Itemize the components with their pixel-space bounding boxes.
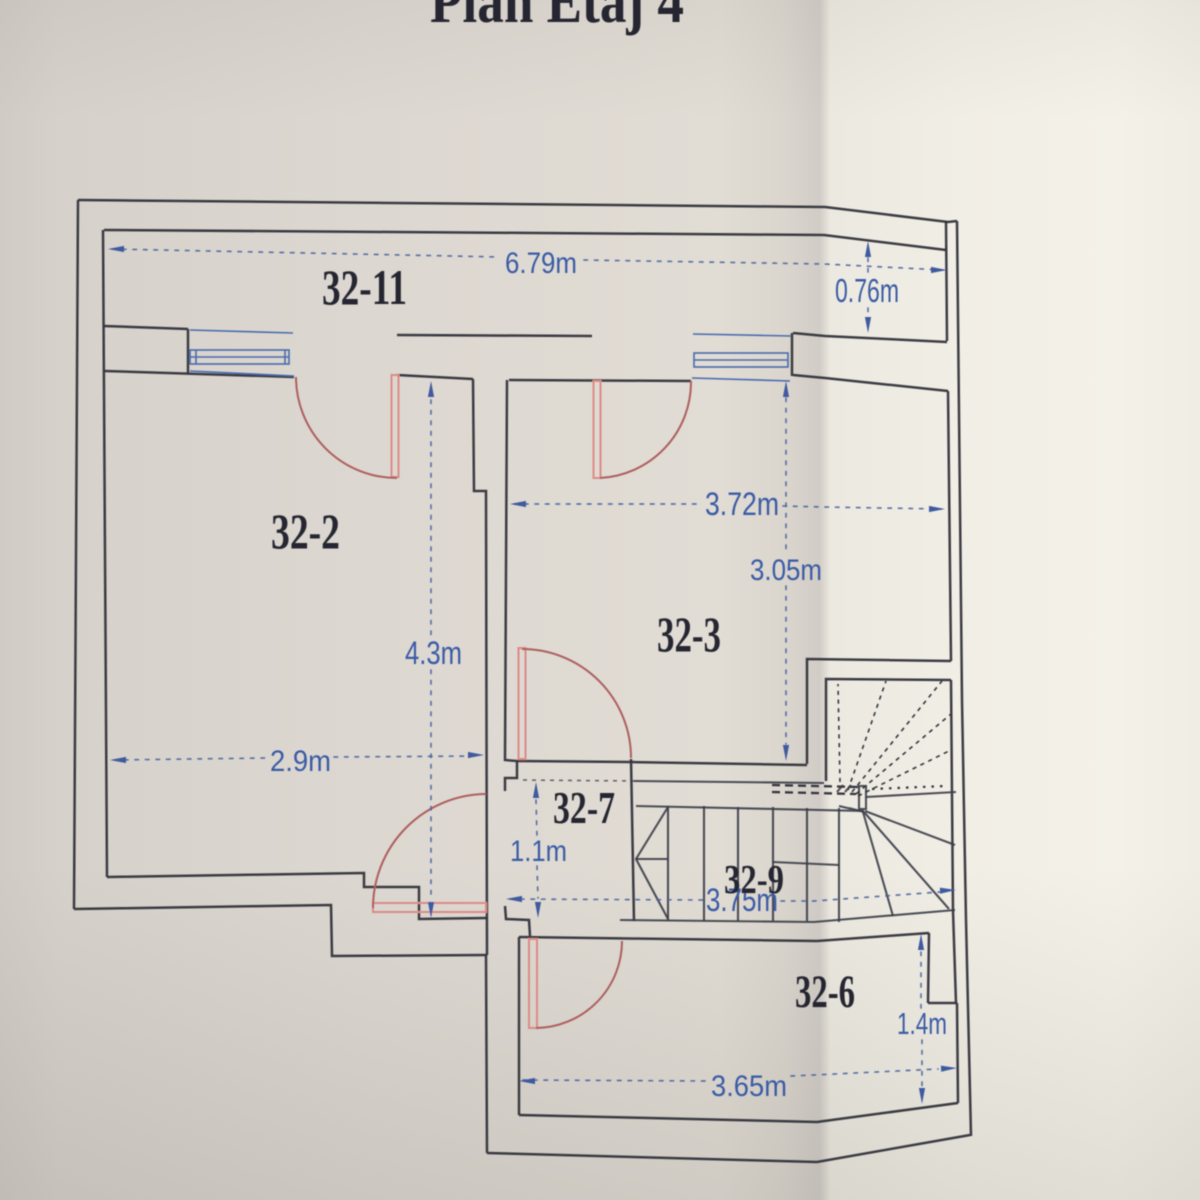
svg-text:2.9m: 2.9m: [270, 745, 331, 778]
svg-text:6.79m: 6.79m: [505, 247, 577, 280]
svg-text:1.4m: 1.4m: [897, 1006, 947, 1041]
svg-text:4.3m: 4.3m: [405, 635, 462, 671]
svg-text:32-6: 32-6: [795, 966, 855, 1018]
svg-text:3.05m: 3.05m: [750, 554, 822, 587]
svg-text:32-7: 32-7: [553, 783, 615, 833]
svg-text:0.76m: 0.76m: [835, 272, 899, 309]
svg-text:3.72m: 3.72m: [705, 486, 779, 522]
svg-text:32-3: 32-3: [657, 606, 721, 662]
svg-text:Plan Etaj 4: Plan Etaj 4: [430, 0, 684, 36]
svg-text:1.1m: 1.1m: [510, 835, 567, 868]
svg-text:32-2: 32-2: [271, 503, 340, 559]
svg-text:32-11: 32-11: [322, 259, 407, 315]
svg-text:32-9: 32-9: [724, 856, 784, 902]
svg-text:3.65m: 3.65m: [711, 1070, 787, 1103]
